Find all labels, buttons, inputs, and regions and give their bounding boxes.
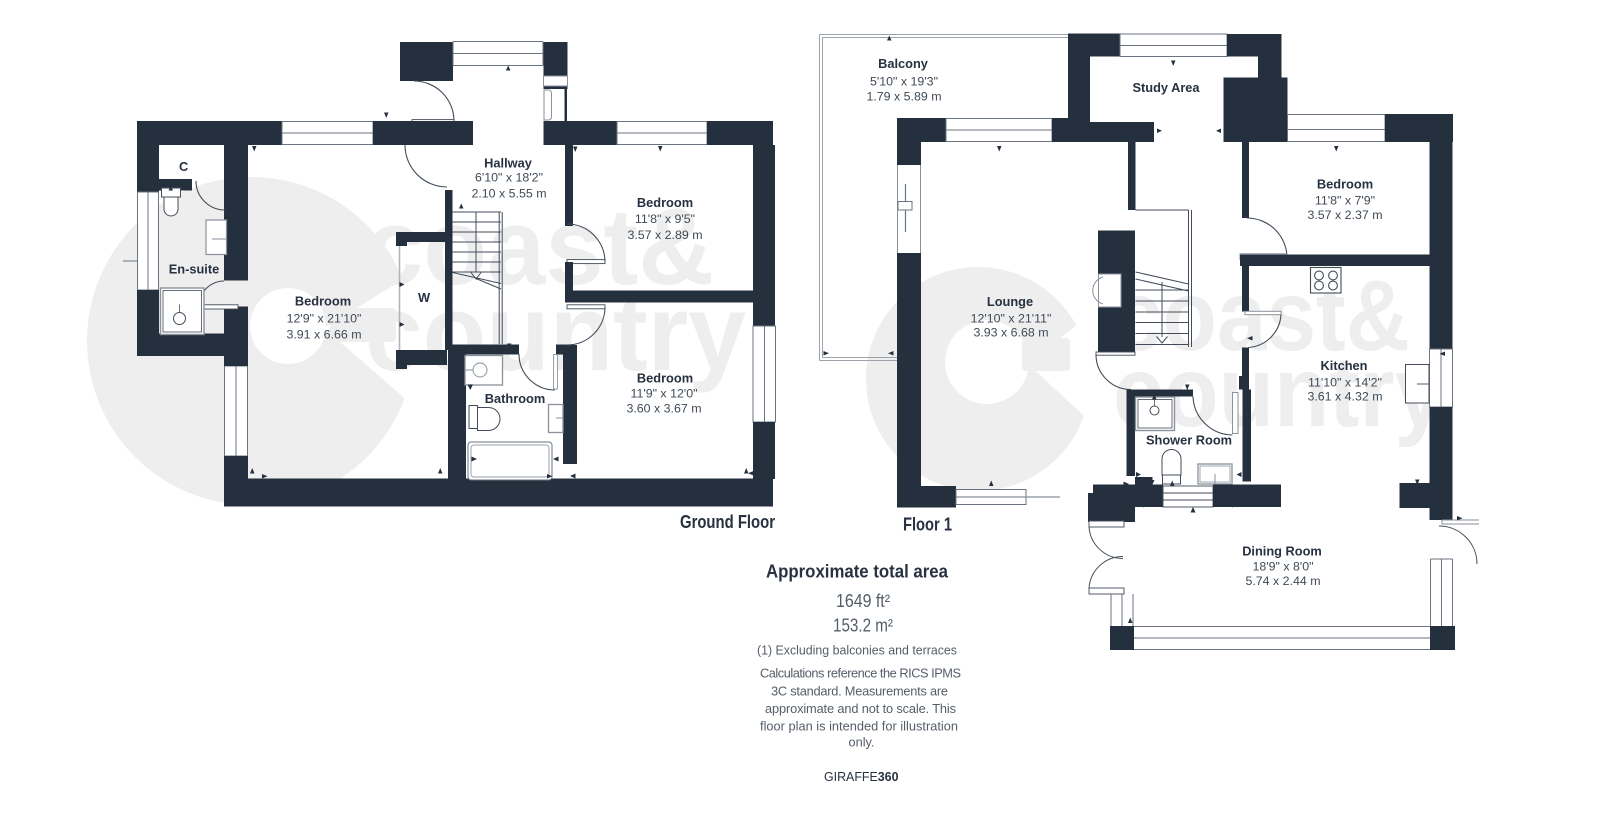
- svg-text:12'9" x 21'10": 12'9" x 21'10": [287, 312, 362, 326]
- svg-text:3.61 x 4.32 m: 3.61 x 4.32 m: [1307, 390, 1382, 404]
- svg-text:only.: only.: [849, 735, 875, 750]
- svg-text:11'8" x 9'5": 11'8" x 9'5": [635, 212, 695, 226]
- svg-text:3.57 x 2.89 m: 3.57 x 2.89 m: [627, 228, 702, 242]
- svg-text:3.57 x 2.37 m: 3.57 x 2.37 m: [1307, 208, 1382, 222]
- svg-text:Lounge: Lounge: [987, 294, 1033, 309]
- svg-text:5.74 x 2.44 m: 5.74 x 2.44 m: [1245, 574, 1320, 588]
- svg-text:(1) Excluding balconies and te: (1) Excluding balconies and terraces: [757, 643, 957, 658]
- svg-text:12'10" x 21'11": 12'10" x 21'11": [971, 312, 1052, 326]
- svg-text:Study Area: Study Area: [1132, 80, 1200, 95]
- svg-text:1.79 x 5.89 m: 1.79 x 5.89 m: [866, 90, 941, 104]
- svg-text:Bedroom: Bedroom: [637, 195, 693, 210]
- svg-text:2.10 x 5.55 m: 2.10 x 5.55 m: [471, 187, 546, 201]
- svg-text:floor plan is intended for ill: floor plan is intended for illustration: [760, 719, 958, 734]
- svg-text:Hallway: Hallway: [484, 156, 533, 171]
- svg-text:Balcony: Balcony: [878, 56, 929, 71]
- svg-text:Bedroom: Bedroom: [637, 371, 693, 386]
- svg-text:18'9" x 8'0": 18'9" x 8'0": [1252, 560, 1313, 574]
- svg-text:5'10" x 19'3": 5'10" x 19'3": [870, 75, 938, 89]
- svg-text:3.93 x 6.68 m: 3.93 x 6.68 m: [973, 326, 1048, 340]
- svg-text:Shower Room: Shower Room: [1146, 433, 1232, 448]
- svg-text:C: C: [179, 159, 188, 174]
- svg-text:6'10" x 18'2": 6'10" x 18'2": [475, 171, 543, 185]
- svg-text:1649 ft²: 1649 ft²: [836, 591, 890, 611]
- svg-text:153.2 m²: 153.2 m²: [833, 616, 893, 636]
- svg-text:Bedroom: Bedroom: [1317, 177, 1373, 192]
- svg-text:11'10" x 14'2": 11'10" x 14'2": [1308, 376, 1382, 390]
- svg-text:En-suite: En-suite: [169, 262, 219, 277]
- svg-text:Kitchen: Kitchen: [1321, 358, 1368, 373]
- svg-text:approximate and not to scale.: approximate and not to scale. This: [765, 701, 956, 716]
- svg-text:3.60 x 3.67 m: 3.60 x 3.67 m: [626, 402, 701, 416]
- svg-text:3.91 x 6.66 m: 3.91 x 6.66 m: [286, 328, 361, 342]
- svg-text:Bedroom: Bedroom: [295, 294, 351, 309]
- svg-text:Ground Floor: Ground Floor: [680, 511, 775, 532]
- svg-text:GIRAFFE360: GIRAFFE360: [824, 769, 899, 784]
- svg-text:Bathroom: Bathroom: [485, 391, 545, 406]
- svg-text:11'8" x 7'9": 11'8" x 7'9": [1315, 194, 1375, 208]
- svg-text:Floor 1: Floor 1: [903, 514, 952, 535]
- svg-text:3C standard. Measurements are: 3C standard. Measurements are: [771, 684, 948, 699]
- svg-text:W: W: [418, 290, 431, 305]
- svg-text:Calculations reference the RIC: Calculations reference the RICS IPMS: [760, 666, 961, 681]
- svg-text:11'9" x 12'0": 11'9" x 12'0": [630, 387, 697, 401]
- svg-text:Approximate total area: Approximate total area: [766, 561, 949, 582]
- svg-text:Dining Room: Dining Room: [1242, 544, 1322, 559]
